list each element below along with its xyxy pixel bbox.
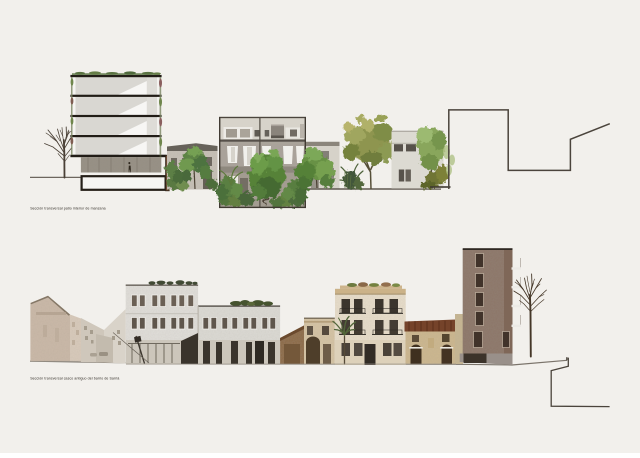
svg-text:Sección transversal casco anti: Sección transversal casco antiguo del ba… xyxy=(30,376,119,380)
svg-text:Sección transversal patio inte: Sección transversal patio interior de ma… xyxy=(30,207,106,211)
